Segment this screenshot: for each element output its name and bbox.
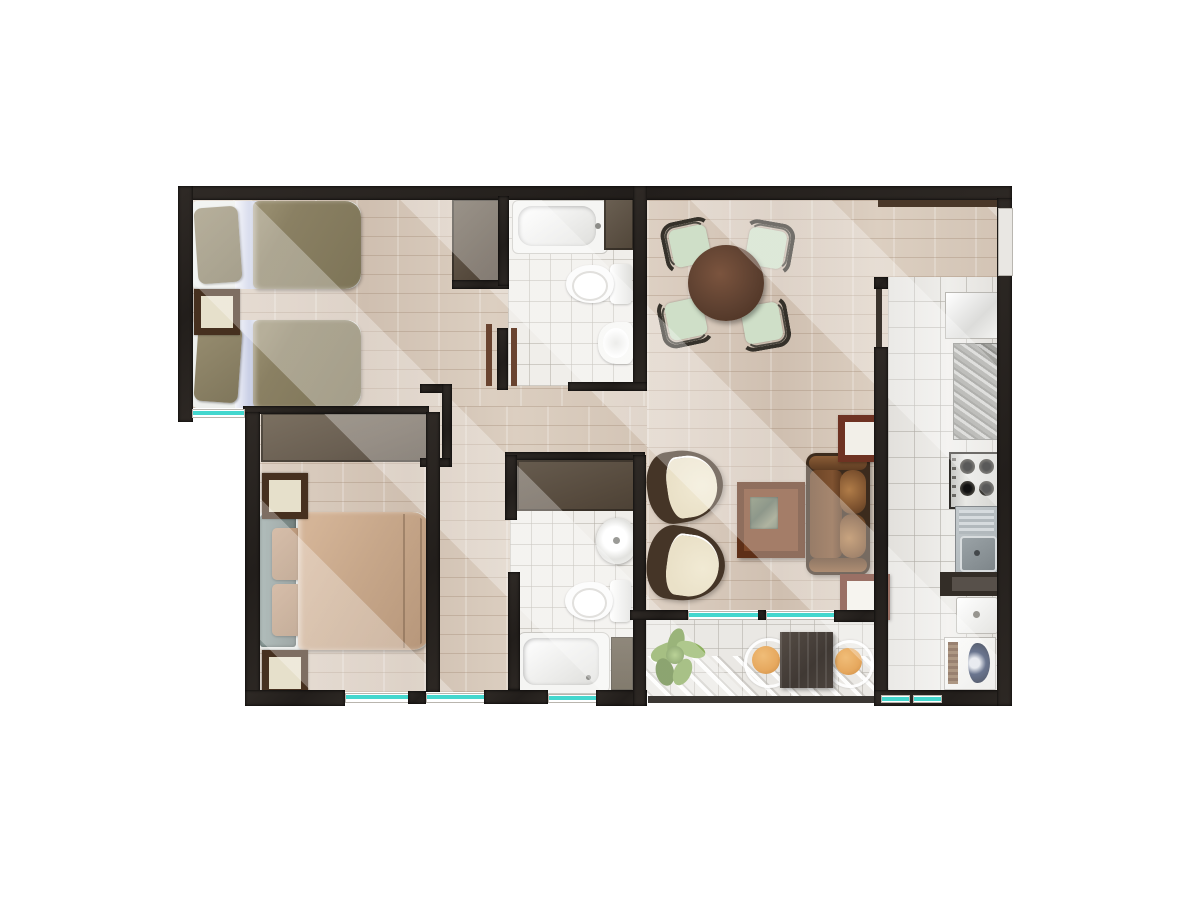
wall-top (178, 186, 1012, 200)
coffee-table-art (750, 497, 778, 529)
sofa (806, 453, 870, 575)
wall-bath1-left-lower (497, 328, 508, 390)
stove-controls (952, 458, 956, 500)
wall-bedroom2-left (245, 412, 260, 706)
wall-bath1-left-upper (498, 196, 509, 286)
sofa-back-cushion-bottom (840, 514, 866, 558)
stove-burner (979, 481, 994, 496)
kitchen-sink (955, 506, 1000, 574)
wall-hall-bottom (484, 690, 548, 704)
nightstand-bedroom2-top (262, 473, 308, 519)
nightstand-bedroom1 (194, 289, 240, 335)
washer-rack (948, 642, 958, 684)
bath2-vanity (517, 460, 637, 511)
balcony-table (780, 632, 833, 688)
basin-bath2 (596, 518, 638, 564)
wall-living-balcony-a (630, 610, 688, 620)
wall-kitchen-left (874, 347, 888, 706)
refrigerator (945, 292, 1000, 339)
sofa-seat (810, 470, 842, 558)
stove-burner (960, 459, 975, 474)
laundry-faucet (973, 611, 980, 618)
bidet-bath1 (598, 322, 634, 364)
wall-bath1-right (633, 186, 647, 390)
bathtub-bath1 (512, 200, 608, 254)
coffee-table (737, 482, 805, 558)
door-leaf-kitchen (876, 289, 882, 347)
window-bedroom2-b (426, 693, 486, 703)
wardrobe-bedroom2 (261, 413, 428, 462)
wall-living-balcony-b (758, 610, 766, 620)
bath1-shelf (604, 198, 634, 250)
plant-center (666, 646, 684, 664)
basin-drain (613, 537, 620, 544)
wall-left-bedroom1 (178, 186, 193, 422)
sink-basin (960, 536, 997, 572)
bed-pillow (193, 325, 242, 404)
bed-pillow (193, 206, 242, 285)
sofa-arm-bottom (809, 558, 867, 572)
bed-blanket (253, 201, 361, 289)
granite-counter (953, 343, 1000, 440)
potted-plant (646, 624, 704, 686)
toilet-seat (572, 271, 608, 301)
wall-balcony-bottom (648, 696, 874, 703)
dining-table (688, 245, 764, 321)
laundry-sink (956, 597, 998, 634)
toilet-seat (572, 588, 607, 618)
washing-machine (944, 637, 996, 690)
wall-bath1-bottom (568, 382, 647, 391)
wardrobe-bedroom1 (452, 199, 500, 283)
toilet-tank (610, 580, 631, 622)
wall-bath2-left-lower (508, 572, 520, 690)
wall-kitchen-left-top (874, 277, 888, 289)
stove-burner (979, 459, 994, 474)
counter-shelf (952, 577, 1000, 591)
window-bedroom1 (192, 409, 245, 418)
toilet-bath1 (566, 262, 634, 306)
window-balcony-b (766, 611, 836, 620)
door-jamb-bedroom1-b (442, 384, 452, 467)
wall-bath2-left-upper (505, 455, 517, 520)
tub-faucet (586, 675, 591, 680)
wall-bath2-top-edge (505, 452, 645, 460)
chair-cushion (752, 646, 780, 674)
sink-drain (974, 550, 980, 556)
toilet-bath2 (563, 578, 633, 624)
ledge-top-right (878, 200, 1007, 207)
wall-post-bottom (408, 691, 426, 704)
window-bedroom2-a (345, 693, 410, 703)
stove (949, 452, 1002, 509)
double-bed (260, 512, 430, 650)
balcony-chair-right (826, 640, 874, 688)
door-leaf-bedroom1 (486, 324, 492, 386)
tub-faucet (595, 223, 601, 229)
sink-drainboard (959, 510, 994, 534)
bathtub-bath2 (517, 632, 610, 694)
stove-burner (960, 481, 975, 496)
window-balcony-a (688, 611, 760, 620)
tub-basin (518, 206, 596, 246)
bath2-mat (611, 637, 633, 690)
wall-bedroom1-bottom (243, 406, 429, 414)
chair-cushion (835, 648, 862, 675)
wall-right-opening (998, 208, 1013, 276)
window-kitchen-b (913, 695, 942, 703)
wall-bedroom2-right (426, 412, 440, 692)
wall-bedroom2-bottom (245, 690, 345, 706)
twin-bed-1 (193, 201, 361, 289)
door-leaf-bath1 (511, 328, 517, 386)
bidet-bowl (603, 328, 629, 358)
bed-blanket (253, 320, 361, 408)
floor-plan-canvas (0, 0, 1200, 900)
washer-drum (968, 643, 990, 683)
window-kitchen-a (881, 695, 910, 703)
sofa-back-cushion-top (840, 470, 866, 514)
wall-bath2-right (633, 455, 646, 706)
window-bath2 (548, 694, 598, 703)
blanket-folds (388, 514, 426, 648)
